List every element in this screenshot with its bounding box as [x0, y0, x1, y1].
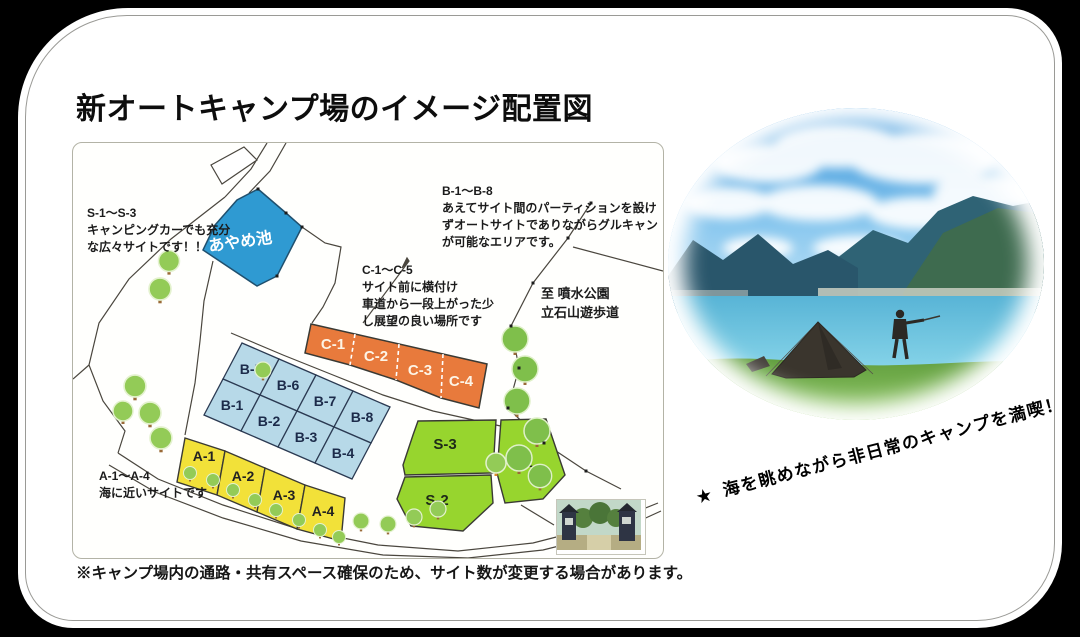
footnote: ※キャンプ場内の通路・共有スペース確保のため、サイト数が変更する場合があります。: [76, 561, 692, 583]
note-line: し展望の良い場所です: [362, 313, 494, 330]
tree-icon: [504, 388, 530, 417]
svg-text:A-3: A-3: [273, 487, 296, 503]
tree-icon: [149, 278, 171, 303]
note-line: 至 噴水公園: [541, 284, 619, 303]
note-c-sites: C-1～C-5 サイト前に横付け 車道から一段上がった少 し展望の良い場所です: [362, 262, 494, 330]
tree-icon: [333, 531, 346, 546]
note-line: キャンピングカーでも充分: [87, 222, 230, 239]
tree-icon: [380, 516, 396, 534]
shore-strip: [668, 290, 748, 296]
svg-text:B-8: B-8: [351, 409, 374, 425]
note-line: が可能なエリアです。: [442, 234, 658, 251]
note-b-sites: B-1～B-8 あえてサイト間のパーティションを設け ずオートサイトでありながら…: [442, 183, 658, 251]
town-strip: [818, 288, 1044, 296]
tree-icon: [113, 401, 133, 424]
svg-text:B-3: B-3: [295, 429, 318, 445]
tree-icon: [502, 326, 528, 355]
svg-text:A-4: A-4: [312, 503, 335, 519]
svg-text:C-3: C-3: [408, 362, 432, 379]
note-line: 海に近いサイトです: [99, 485, 207, 502]
camp-photo: [668, 108, 1044, 420]
note-line: サイト前に横付け: [362, 279, 494, 296]
tree-icon: [124, 375, 146, 400]
tree-icon: [353, 513, 369, 531]
note-line: 立石山遊歩道: [541, 303, 619, 322]
tree-icon: [150, 427, 172, 452]
star-icon: ★: [695, 486, 715, 506]
tree-icon: [139, 402, 161, 427]
note-line: 車道から一段上がった少: [362, 296, 494, 313]
note-line: C-1～C-5: [362, 262, 494, 279]
site-map: あやめ池 C-1 C-2 C-3 C-4 B-5: [72, 142, 664, 559]
note-line: S-1～S-3: [87, 205, 230, 222]
svg-text:A-1: A-1: [193, 448, 216, 464]
svg-text:C-2: C-2: [364, 348, 388, 365]
note-fountain-park: 至 噴水公園 立石山遊歩道: [541, 284, 619, 322]
page-title: 新オートキャンプ場のイメージ配置図: [76, 84, 593, 128]
note-line: な広々サイトです！！: [87, 239, 230, 256]
svg-text:B-2: B-2: [258, 413, 281, 429]
svg-text:B-6: B-6: [277, 377, 300, 393]
svg-text:B-1: B-1: [221, 397, 244, 413]
note-line: あえてサイト間のパーティションを設け: [442, 200, 658, 217]
svg-text:B-4: B-4: [332, 445, 355, 461]
note-s-sites: S-1～S-3 キャンピングカーでも充分 な広々サイトです！！: [87, 205, 230, 256]
svg-text:S-3: S-3: [433, 436, 456, 453]
note-line: A-1～A-4: [99, 468, 207, 485]
entrance-photo: [556, 499, 646, 555]
camp-photo-image: [668, 108, 1044, 420]
star-icon: ★: [1072, 389, 1080, 409]
svg-text:C-1: C-1: [321, 336, 345, 353]
note-line: ずオートサイトでありながらグルキャン: [442, 217, 658, 234]
svg-text:C-4: C-4: [449, 373, 474, 390]
sea: [668, 296, 1044, 368]
note-line: B-1～B-8: [442, 183, 658, 200]
svg-text:B-7: B-7: [314, 393, 337, 409]
note-a-sites: A-1～A-4 海に近いサイトです: [99, 468, 207, 502]
svg-text:A-2: A-2: [232, 468, 255, 484]
entrance-photo-image: [557, 500, 641, 550]
